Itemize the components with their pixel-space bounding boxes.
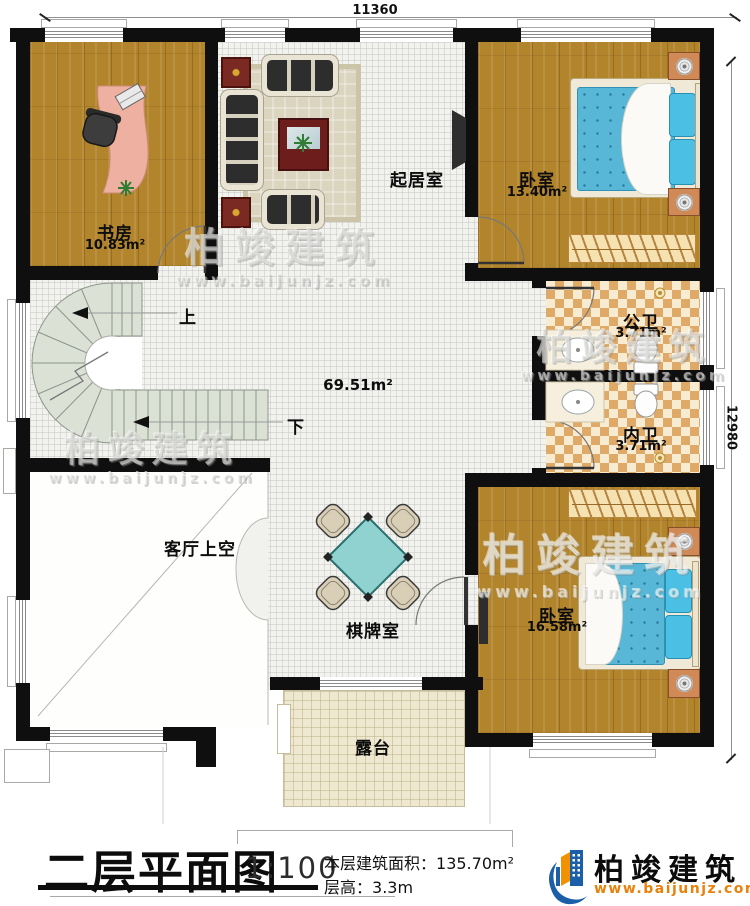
sofa-bottom	[261, 189, 325, 230]
title-underline	[38, 885, 318, 890]
lamp-icon	[676, 533, 693, 550]
floor-plan-page: 书房 10.83m² 起居室 卧室 13.40m² 公卫 3.71m² 内卫 3…	[0, 0, 750, 906]
floor-area-row: 本层建筑面积：135.70m²	[324, 850, 514, 874]
window	[700, 292, 714, 365]
wall-bath-left	[532, 336, 546, 420]
coffee-table	[278, 118, 329, 171]
label-hall-area: 69.51m²	[323, 376, 393, 394]
lamp-icon	[676, 194, 693, 211]
label-chess-room: 棋牌室	[346, 617, 400, 642]
label-study-area: 10.83m²	[85, 238, 145, 253]
window-sill	[716, 288, 725, 369]
window	[533, 733, 652, 747]
sofa-left	[220, 89, 264, 191]
window-sill	[221, 19, 289, 28]
wall-bedroom-bottom-left	[465, 487, 478, 575]
window	[700, 390, 714, 465]
label-bedroom-top-area: 13.40m²	[507, 185, 567, 200]
bed-bottom	[578, 556, 701, 670]
nightstand	[668, 527, 700, 556]
nightstand	[668, 669, 700, 698]
wall-bath-top	[465, 268, 714, 281]
wall-bath-bottom	[465, 473, 714, 487]
window	[225, 28, 285, 42]
side-table	[221, 197, 251, 228]
label-bedroom-bottom-area: 16.58m²	[527, 620, 587, 635]
wall-bath-divider	[546, 370, 700, 382]
label-bath-private-area: 3.71m²	[615, 439, 666, 454]
bay-window	[3, 448, 16, 494]
window-sill	[529, 749, 656, 758]
window-sill	[517, 19, 655, 28]
window	[521, 28, 651, 42]
void-floor	[30, 472, 268, 727]
dim-top: 11360	[352, 3, 397, 18]
bay-window	[4, 749, 50, 783]
brand-url: www.baijunjz.com	[594, 881, 750, 897]
dim-right: 12980	[724, 399, 739, 457]
wardrobe-top	[568, 234, 696, 263]
side-table	[221, 57, 251, 88]
window-sill	[7, 596, 16, 687]
window-sill	[356, 19, 457, 28]
nightstand	[668, 188, 700, 216]
window-sill	[41, 19, 127, 28]
floor-area-label: 本层建筑面积：	[324, 854, 436, 873]
page-title: 二层平面图	[44, 836, 279, 901]
label-bath-public-area: 3.71m²	[615, 326, 666, 341]
label-stairs-up: 上	[179, 303, 197, 328]
window	[16, 303, 30, 418]
wall-right	[700, 28, 714, 747]
window-sill	[46, 743, 167, 752]
label-terrace: 露台	[355, 734, 391, 759]
wall-study-right	[205, 42, 218, 280]
terrace-door	[320, 677, 422, 690]
nightstand	[668, 52, 700, 80]
window	[360, 28, 453, 42]
window	[45, 28, 123, 42]
brand-logo-icon	[537, 843, 591, 905]
wall-stairs-bottom	[30, 458, 270, 472]
wall-study-bottom	[16, 266, 158, 280]
window-sill	[7, 299, 16, 422]
lamp-icon	[676, 58, 693, 75]
wardrobe-bottom	[568, 489, 697, 518]
lamp-icon	[676, 675, 693, 692]
wall-bedroom-top-left	[465, 42, 478, 217]
floor-area-value: 135.70m²	[436, 854, 514, 873]
wall-corner-step	[196, 727, 216, 767]
label-living: 起居室	[390, 166, 444, 191]
bed-top	[570, 78, 702, 198]
label-stairs-down: 下	[287, 413, 305, 438]
floor-height-value: 3.3m	[372, 878, 413, 897]
window	[50, 727, 163, 741]
window	[16, 600, 30, 683]
floor-height-row: 层高：3.3m	[324, 874, 413, 898]
label-void: 客厅上空	[164, 535, 236, 560]
sofa-top	[261, 54, 339, 97]
terrace-step	[277, 704, 291, 754]
floor-height-label: 层高：	[324, 878, 372, 897]
